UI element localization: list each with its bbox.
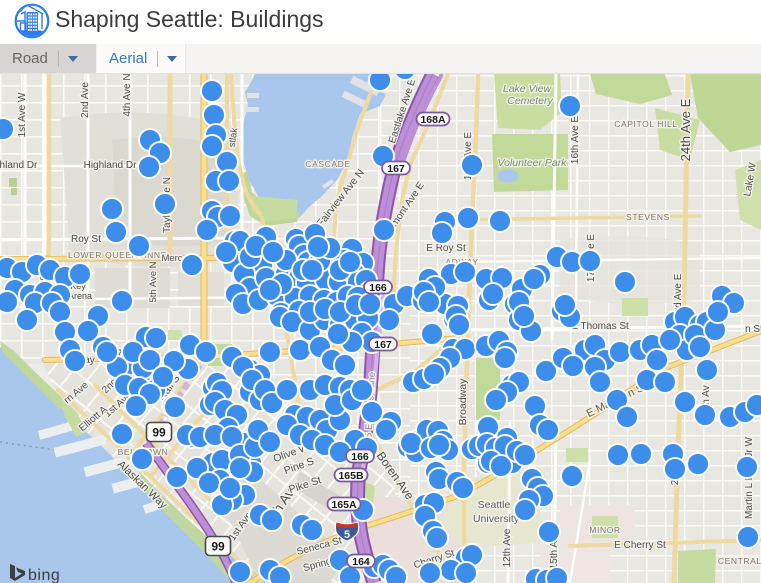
svg-text:Roy St: Roy St [71,234,101,245]
svg-text:Broadway: Broadway [457,378,469,425]
svg-text:167: 167 [374,339,392,351]
svg-text:166: 166 [369,282,387,294]
svg-text:99: 99 [211,539,225,553]
svg-text:ghland Dr: ghland Dr [0,160,38,171]
svg-text:E Cherry St: E Cherry St [614,540,666,551]
svg-text:165B: 165B [338,470,364,482]
svg-text:MINOR: MINOR [589,525,620,535]
svg-text:Cemetery: Cemetery [507,95,553,107]
svg-text:STEVENS: STEVENS [626,212,670,222]
svg-text:CASCADE: CASCADE [305,159,350,169]
svg-text:Volunteer Park: Volunteer Park [497,157,567,169]
svg-text:CAPITOL HILL: CAPITOL HILL [614,119,677,129]
svg-text:99: 99 [152,425,166,439]
svg-text:CENTRAL A: CENTRAL A [718,556,761,566]
svg-text:Seattle: Seattle [478,499,511,511]
svg-text:24th Ave E: 24th Ave E [678,98,693,161]
svg-text:5th Ave N: 5th Ave N [148,261,159,302]
svg-text:Highland Dr: Highland Dr [84,160,137,171]
svg-text:University: University [473,513,520,525]
svg-text:E Roy St: E Roy St [426,243,466,254]
svg-text:2nd Ave: 2nd Ave [80,82,91,118]
svg-text:164: 164 [352,556,370,568]
svg-text:LOWER QUEEN ANNE: LOWER QUEEN ANNE [68,250,167,260]
svg-text:5: 5 [344,529,350,541]
svg-text:12th Ave: 12th Ave [502,528,513,567]
svg-text:Merc: Merc [161,253,182,264]
svg-text:bing: bing [28,567,60,583]
svg-text:166: 166 [351,451,369,463]
svg-text:n St: n St [745,324,761,335]
svg-text:1st Ave W: 1st Ave W [17,92,28,137]
svg-text:165A: 165A [331,499,357,511]
svg-text:167: 167 [387,163,405,175]
svg-text:16th Ave E: 16th Ave E [570,116,581,165]
svg-text:Lake View: Lake View [503,83,553,95]
svg-text:4th Ave N: 4th Ave N [122,74,133,117]
svg-text:168A: 168A [420,114,446,126]
